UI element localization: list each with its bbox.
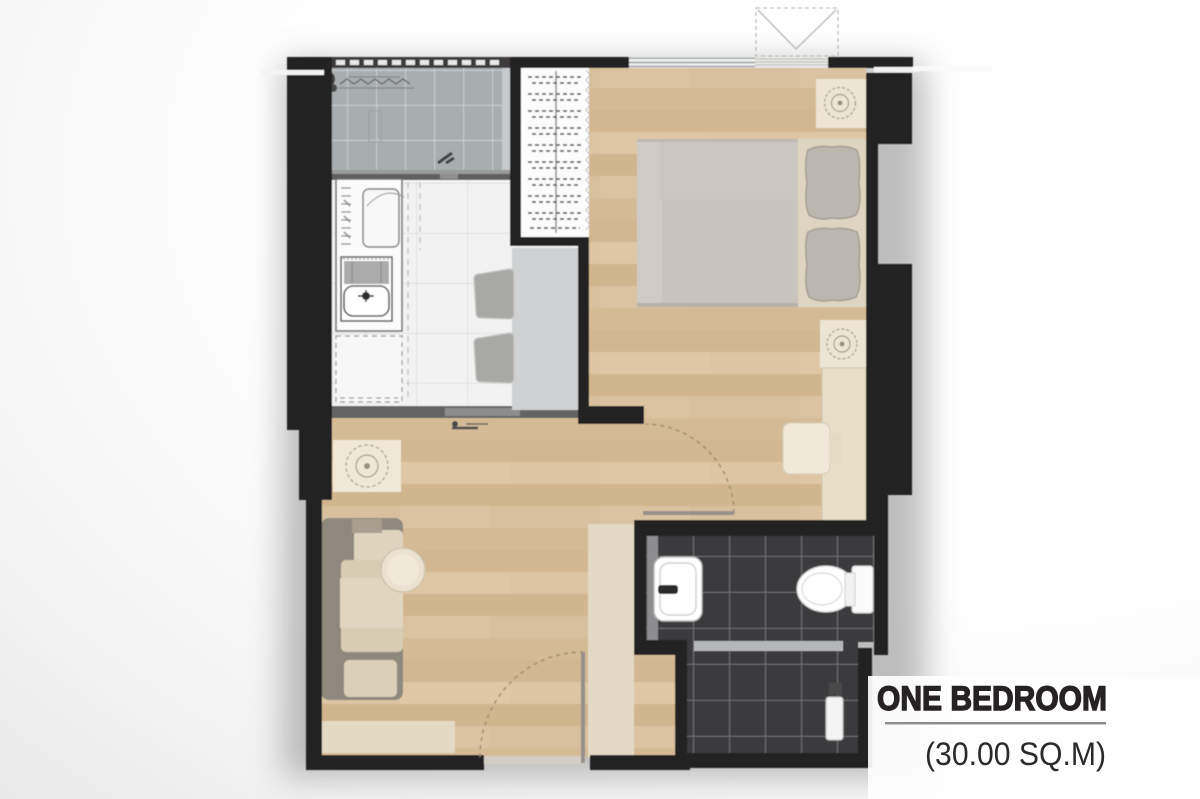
svg-text:(30.00 SQ.M): (30.00 SQ.M) (925, 736, 1106, 772)
svg-text:ONE BEDROOM: ONE BEDROOM (877, 680, 1107, 718)
